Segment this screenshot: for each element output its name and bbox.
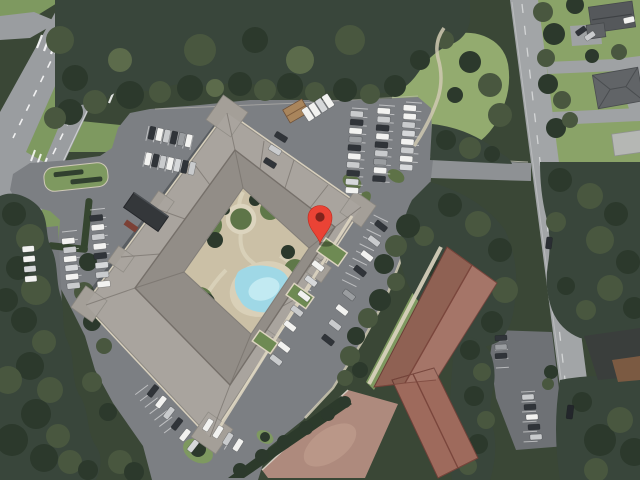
- shed-roof: [612, 130, 640, 156]
- garden-circle: [228, 206, 254, 232]
- pin-shadow: [319, 241, 333, 246]
- satellite-map[interactable]: [0, 0, 640, 480]
- pin-dot: [315, 212, 324, 221]
- satellite-map-viewport[interactable]: [0, 0, 640, 480]
